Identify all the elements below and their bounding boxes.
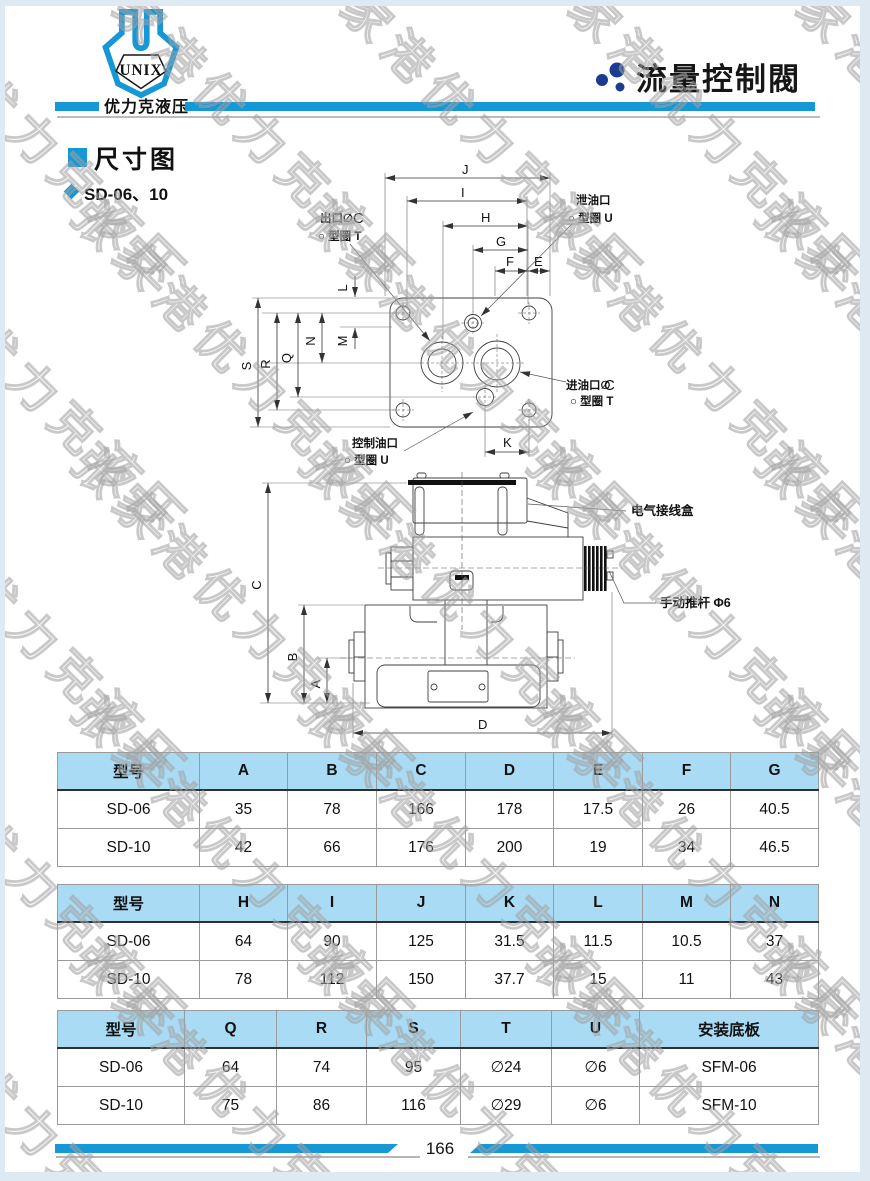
table-cell: 66 xyxy=(288,829,377,867)
dimension-table-1: 型号ABCDEFGSD-06357816617817.52640.5SD-104… xyxy=(57,752,819,867)
header-cell: Q xyxy=(185,1011,277,1049)
control-port-circle xyxy=(473,385,497,409)
dim-label-M: M xyxy=(335,336,350,347)
table-row: SD-104266176200193446.5 xyxy=(58,829,819,867)
table-cell: 125 xyxy=(377,922,466,961)
header-cell: D xyxy=(466,753,554,791)
table-cell: 78 xyxy=(288,790,377,829)
table-cell: SD-06 xyxy=(58,922,200,961)
header-cell: E xyxy=(554,753,643,791)
table-cell: 26 xyxy=(643,790,731,829)
table-cell: SFM-10 xyxy=(640,1087,819,1125)
table-row: SD-06357816617817.52640.5 xyxy=(58,790,819,829)
corner-bolt-holes xyxy=(392,302,540,421)
header-cell: A xyxy=(200,753,288,791)
table-cell: 78 xyxy=(200,961,288,999)
drain-port-circle xyxy=(461,311,485,335)
header-cell: S xyxy=(367,1011,461,1049)
table-cell: ∅6 xyxy=(552,1087,640,1125)
table-cell: 90 xyxy=(288,922,377,961)
control-callout: 控制油口 ○ 型圈 U xyxy=(344,412,473,467)
table-cell: 37.7 xyxy=(466,961,554,999)
table-cell: 10.5 xyxy=(643,922,731,961)
table-cell: 40.5 xyxy=(731,790,819,829)
table-cell: 86 xyxy=(277,1087,367,1125)
dim-label-H: H xyxy=(481,210,490,225)
outlet-label: 出口∅ xyxy=(320,211,353,225)
table-cell: 176 xyxy=(377,829,466,867)
header-cell: H xyxy=(200,885,288,923)
table-cell: 15 xyxy=(554,961,643,999)
header-cell: 型号 xyxy=(58,1011,185,1049)
header-cell: I xyxy=(288,885,377,923)
solenoid-body xyxy=(386,537,583,600)
dim-label-R: R xyxy=(258,359,273,368)
table-cell: 150 xyxy=(377,961,466,999)
table-cell: SFM-06 xyxy=(640,1048,819,1087)
dim-label-N: N xyxy=(303,336,318,345)
inlet-callout: 进油口∅ C ○ 型圈 T xyxy=(520,372,615,408)
footer-rule-left xyxy=(56,1156,420,1158)
table-cell: 75 xyxy=(185,1087,277,1125)
dim-label-F: F xyxy=(506,254,514,269)
header-cell: 型号 xyxy=(58,753,200,791)
footer-bar-left xyxy=(55,1144,398,1153)
table-cell: 178 xyxy=(466,790,554,829)
table-cell: SD-10 xyxy=(58,961,200,999)
junction-box-label: 电气接线盒 xyxy=(631,503,694,518)
dim-label-I: I xyxy=(461,185,465,200)
table-cell: 64 xyxy=(185,1048,277,1087)
table-cell: 37 xyxy=(731,922,819,961)
outlet-ring-label: ○ 型圈 T xyxy=(318,229,361,243)
header-cell: 安装底板 xyxy=(640,1011,819,1049)
manual-rod-label: 手动推杆 Φ6 xyxy=(660,595,731,610)
table-row: SD-107586116∅29∅6SFM-10 xyxy=(58,1087,819,1125)
table-header-row: 型号QRSTU安装底板 xyxy=(58,1011,819,1049)
table-header-row: 型号ABCDEFG xyxy=(58,753,819,791)
catalog-page: { "page": { "brand": "UNIX", "brand_sub"… xyxy=(0,0,870,1181)
page-number: 166 xyxy=(405,1139,475,1159)
table-cell: 19 xyxy=(554,829,643,867)
header-cell: M xyxy=(643,885,731,923)
page-border-right xyxy=(860,0,870,1181)
control-ring-label: ○ 型圈 U xyxy=(344,453,389,467)
table-cell: 74 xyxy=(277,1048,367,1087)
table-cell: 116 xyxy=(367,1087,461,1125)
table-cell: 200 xyxy=(466,829,554,867)
table-cell: 11.5 xyxy=(554,922,643,961)
page-border-left xyxy=(0,0,5,1181)
inlet-size-letter: C xyxy=(604,377,615,394)
footer-bar-right xyxy=(470,1144,818,1153)
table-cell: 34 xyxy=(643,829,731,867)
table-cell: 166 xyxy=(377,790,466,829)
top-view-drawing: J I H G F E S R Q N L M xyxy=(239,162,615,467)
table-cell: 42 xyxy=(200,829,288,867)
table-cell: 31.5 xyxy=(466,922,554,961)
table-cell: 95 xyxy=(367,1048,461,1087)
header-cell: R xyxy=(277,1011,367,1049)
dim-label-B: B xyxy=(285,653,300,662)
table-cell: 43 xyxy=(731,961,819,999)
dim-label-Q: Q xyxy=(279,353,294,363)
dim-label-S: S xyxy=(239,361,254,370)
header-cell: N xyxy=(731,885,819,923)
side-view-drawing: C B A D 电气接线盒 手动推杆 Φ6 xyxy=(249,472,731,738)
table-row: SD-107811215037.7151143 xyxy=(58,961,819,999)
manual-push-rod xyxy=(584,546,613,591)
inlet-ring-label: ○ 型圈 T xyxy=(570,394,613,408)
dim-label-L: L xyxy=(335,284,350,291)
control-label: 控制油口 xyxy=(352,436,398,450)
page-border-top xyxy=(0,0,870,6)
header-cell: T xyxy=(461,1011,552,1049)
table-cell: 46.5 xyxy=(731,829,819,867)
junction-box-callout: 电气接线盒 xyxy=(528,503,694,518)
dimension-table-2: 型号HIJKLMNSD-06649012531.511.510.537SD-10… xyxy=(57,884,819,999)
table-cell: ∅29 xyxy=(461,1087,552,1125)
table-cell: 11 xyxy=(643,961,731,999)
dim-label-C: C xyxy=(249,580,264,589)
table-cell: 64 xyxy=(200,922,288,961)
dim-label-J: J xyxy=(462,162,469,177)
table-cell: 112 xyxy=(288,961,377,999)
dimension-table-3-wrap: 型号QRSTU安装底板SD-06647495∅24∅6SFM-06SD-1075… xyxy=(57,1010,818,1125)
dimension-table-1-wrap: 型号ABCDEFGSD-06357816617817.52640.5SD-104… xyxy=(57,752,818,867)
outlet-callout: 出口∅ C ○ 型圈 T xyxy=(318,210,430,341)
outlet-size-letter: C xyxy=(353,210,364,227)
dim-label-K: K xyxy=(503,435,512,450)
table-header-row: 型号HIJKLMN xyxy=(58,885,819,923)
drain-ring-label: ○ 型圈 U xyxy=(568,211,613,225)
table-cell: ∅24 xyxy=(461,1048,552,1087)
table-cell: SD-06 xyxy=(58,790,200,829)
footer-rule-right xyxy=(468,1156,820,1158)
valve-plate-outline xyxy=(390,298,552,427)
dimension-table-2-wrap: 型号HIJKLMNSD-06649012531.511.510.537SD-10… xyxy=(57,884,818,999)
table-cell: 35 xyxy=(200,790,288,829)
header-cell: L xyxy=(554,885,643,923)
hex-nut xyxy=(391,547,413,590)
drain-label: 泄油口 xyxy=(576,193,611,207)
manual-rod-callout: 手动推杆 Φ6 xyxy=(609,571,731,610)
header-cell: B xyxy=(288,753,377,791)
technical-drawing: J I H G F E S R Q N L M xyxy=(0,0,870,755)
header-cell: 型号 xyxy=(58,885,200,923)
page-border-bottom xyxy=(0,1172,870,1181)
dim-label-G: G xyxy=(496,234,506,249)
table-cell: SD-10 xyxy=(58,1087,185,1125)
dimension-table-3: 型号QRSTU安装底板SD-06647495∅24∅6SFM-06SD-1075… xyxy=(57,1010,819,1125)
dim-label-A: A xyxy=(308,679,323,688)
table-cell: SD-10 xyxy=(58,829,200,867)
dim-label-D: D xyxy=(478,717,487,732)
table-row: SD-06647495∅24∅6SFM-06 xyxy=(58,1048,819,1087)
table-cell: ∅6 xyxy=(552,1048,640,1087)
valve-lower-body xyxy=(340,605,575,708)
header-cell: G xyxy=(731,753,819,791)
table-row: SD-06649012531.511.510.537 xyxy=(58,922,819,961)
table-cell: 17.5 xyxy=(554,790,643,829)
header-cell: C xyxy=(377,753,466,791)
header-cell: K xyxy=(466,885,554,923)
header-cell: U xyxy=(552,1011,640,1049)
header-cell: J xyxy=(377,885,466,923)
table-cell: SD-06 xyxy=(58,1048,185,1087)
header-cell: F xyxy=(643,753,731,791)
